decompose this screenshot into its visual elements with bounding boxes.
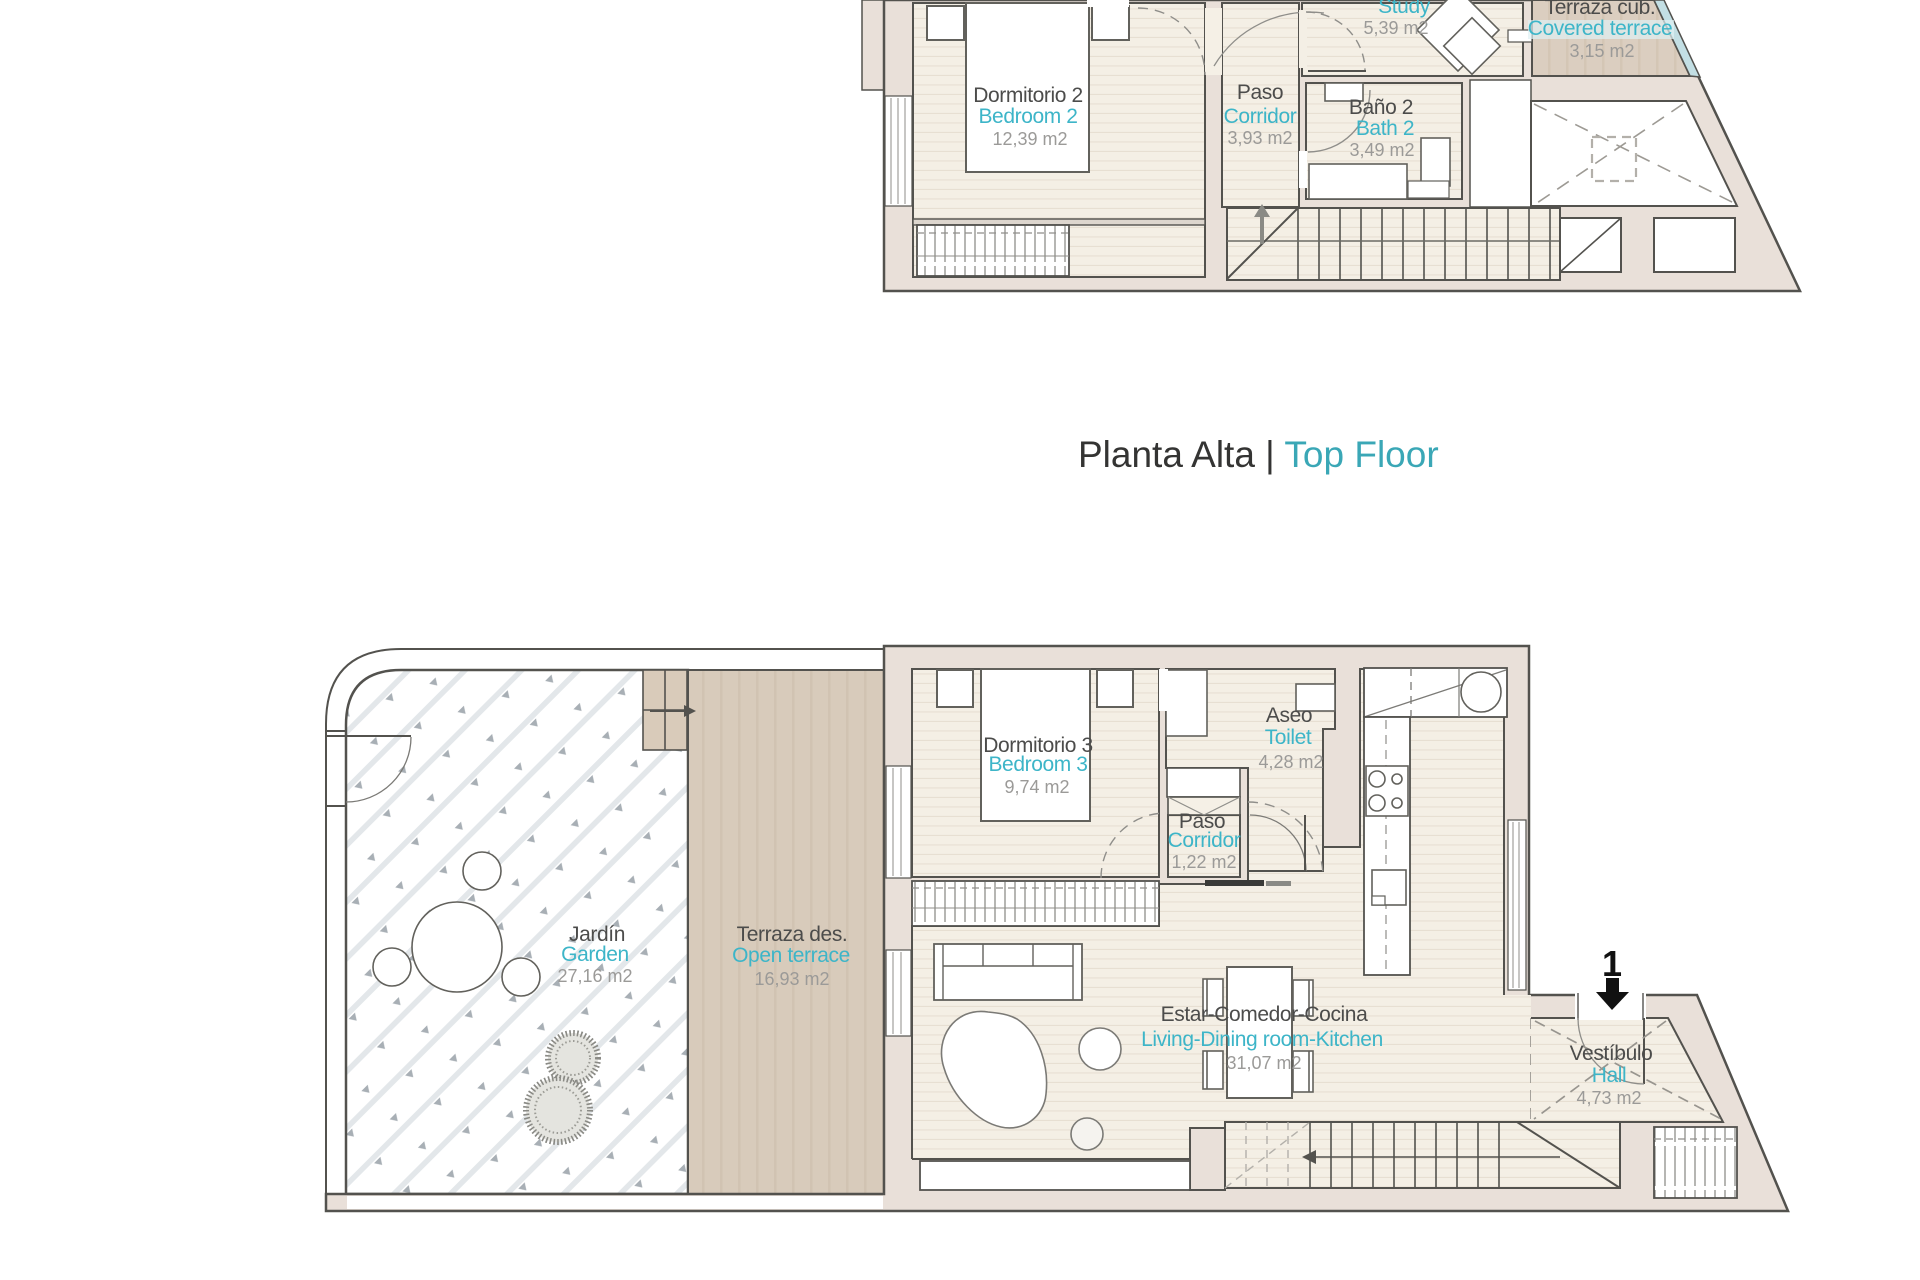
svg-text:31,07 m2: 31,07 m2 [1226,1053,1301,1073]
svg-text:Covered terrace: Covered terrace [1528,17,1673,40]
svg-text:Toilet: Toilet [1265,726,1312,749]
svg-text:Corridor: Corridor [1224,105,1297,128]
svg-text:9,74 m2: 9,74 m2 [1004,777,1069,797]
svg-text:Aseo: Aseo [1266,704,1312,727]
svg-text:3,49 m2: 3,49 m2 [1349,140,1414,160]
svg-text:Bedroom 3: Bedroom 3 [988,753,1087,776]
svg-text:27,16 m2: 27,16 m2 [557,966,632,986]
svg-text:5,39 m2: 5,39 m2 [1363,18,1428,38]
svg-text:Terraza des.: Terraza des. [737,923,848,946]
svg-text:Bath 2: Bath 2 [1356,117,1414,140]
svg-text:12,39 m2: 12,39 m2 [992,129,1067,149]
svg-text:Garden: Garden [561,943,629,966]
svg-text:4,73 m2: 4,73 m2 [1576,1088,1641,1108]
svg-text:3,15 m2: 3,15 m2 [1569,41,1634,61]
svg-text:Bedroom 2: Bedroom 2 [978,105,1077,128]
svg-text:1,22 m2: 1,22 m2 [1171,852,1236,872]
svg-text:Dormitorio 2: Dormitorio 2 [973,84,1083,107]
svg-text:Study: Study [1378,0,1431,18]
svg-text:Living-Dining room-Kitchen: Living-Dining room-Kitchen [1141,1028,1383,1051]
svg-text:Vestíbulo: Vestíbulo [1570,1042,1653,1065]
svg-text:Corridor: Corridor [1168,829,1241,852]
svg-text:Baño 2: Baño 2 [1349,96,1413,119]
svg-text:1: 1 [1602,943,1622,984]
svg-text:4,28 m2: 4,28 m2 [1258,752,1323,772]
svg-text:3,93 m2: 3,93 m2 [1227,128,1292,148]
svg-text:Estar-Comedor-Cocina: Estar-Comedor-Cocina [1161,1003,1368,1026]
svg-text:16,93 m2: 16,93 m2 [754,969,829,989]
svg-text:Planta Alta | Top Floor: Planta Alta | Top Floor [1078,434,1439,475]
svg-text:Open terrace: Open terrace [732,944,850,967]
svg-text:Paso: Paso [1237,81,1283,104]
svg-text:Hall: Hall [1592,1064,1627,1087]
